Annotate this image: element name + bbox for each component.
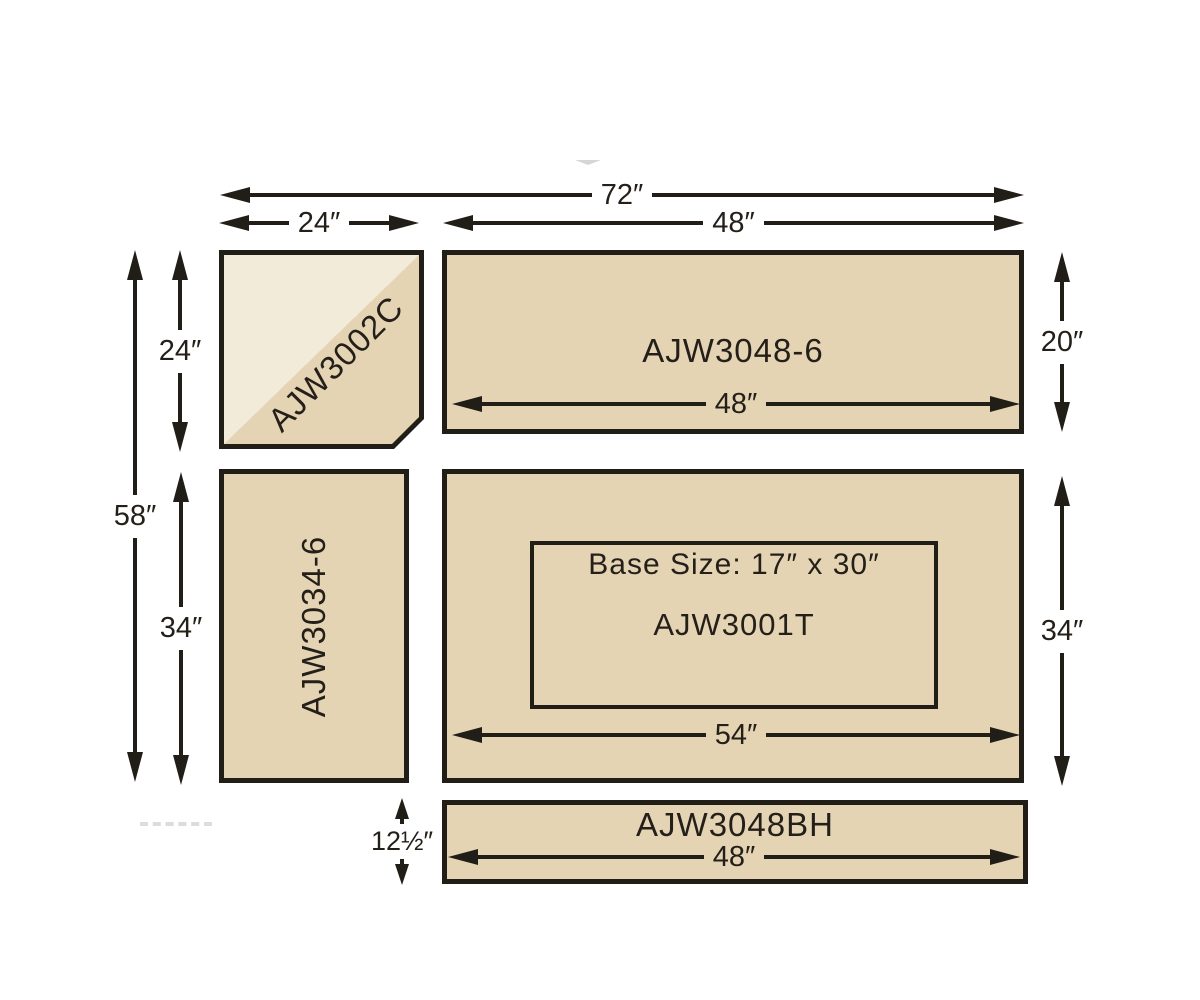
- dim-bottom-panel-height: 12½″: [382, 798, 422, 885]
- dim-line: [178, 373, 182, 423]
- arrowhead-left-icon: [448, 849, 478, 865]
- dim-line: [1060, 653, 1064, 757]
- dim-main-panel-width: 54″: [452, 715, 1020, 755]
- arrowhead-down-icon: [1054, 756, 1070, 786]
- dim-line: [1060, 282, 1064, 321]
- dim-top-panel-height-label: 20″: [1041, 321, 1084, 364]
- dim-corner-width-label: 24″: [289, 209, 350, 238]
- dim-line: [133, 538, 137, 753]
- dim-line: [179, 650, 183, 755]
- dim-left-panel-height-label: 34″: [160, 607, 203, 650]
- dim-overall-height: 58″: [113, 250, 157, 782]
- dim-line: [482, 733, 706, 737]
- dim-top-panel-width: 48″: [452, 384, 1020, 424]
- arrowhead-up-icon: [395, 798, 409, 819]
- arrowhead-left-icon: [219, 215, 249, 231]
- dim-line: [249, 221, 289, 225]
- dim-corner-width: 24″: [219, 203, 419, 243]
- arrowhead-up-icon: [1054, 252, 1070, 282]
- base-size-label: Base Size: 17″ x 30″: [530, 550, 938, 580]
- dim-overall-height-label: 58″: [114, 495, 157, 538]
- arrowhead-left-icon: [452, 396, 482, 412]
- dim-corner-height: 24″: [158, 250, 202, 452]
- dim-line: [178, 280, 182, 330]
- dim-line: [652, 193, 994, 197]
- arrowhead-right-icon: [990, 849, 1020, 865]
- dim-line: [133, 280, 137, 495]
- dim-right-width: 48″: [443, 203, 1024, 243]
- dim-line: [349, 221, 389, 225]
- corner-panel-label: AJW3002C: [262, 290, 409, 437]
- dim-line: [764, 855, 990, 859]
- arrowhead-up-icon: [1054, 476, 1070, 506]
- dim-corner-height-label: 24″: [159, 330, 202, 373]
- arrowhead-left-icon: [452, 727, 482, 743]
- arrowhead-right-icon: [994, 215, 1024, 231]
- dim-line: [482, 402, 706, 406]
- dim-main-panel-height-label: 34″: [1041, 610, 1084, 653]
- arrowhead-down-icon: [395, 864, 409, 885]
- main-panel-label: AJW3001T: [530, 609, 938, 640]
- arrowhead-right-icon: [990, 727, 1020, 743]
- dim-line: [766, 733, 990, 737]
- dim-bottom-panel-width: 48″: [448, 837, 1020, 877]
- dim-line: [766, 402, 990, 406]
- dim-line: [764, 221, 994, 225]
- dim-top-panel-width-label: 48″: [706, 390, 767, 419]
- top-right-panel-label: AJW3048-6: [442, 334, 1024, 367]
- dim-line: [473, 221, 703, 225]
- left-panel-label: AJW3034-6: [297, 535, 330, 716]
- dim-right-width-label: 48″: [703, 209, 764, 238]
- dim-bottom-panel-width-label: 48″: [704, 843, 765, 872]
- dim-line: [179, 502, 183, 607]
- arrowhead-down-icon: [172, 422, 188, 452]
- dim-left-panel-height: 34″: [159, 472, 203, 785]
- arrowhead-right-icon: [990, 396, 1020, 412]
- dim-main-panel-height: 34″: [1040, 476, 1084, 786]
- dim-top-panel-height: 20″: [1040, 252, 1084, 432]
- arrowhead-down-icon: [1054, 402, 1070, 432]
- arrowhead-down-icon: [173, 755, 189, 785]
- watermark-artifact: [140, 822, 212, 826]
- dim-line: [1060, 506, 1064, 610]
- arrowhead-up-icon: [127, 250, 143, 280]
- arrowhead-down-icon: [127, 752, 143, 782]
- arrowhead-right-icon: [994, 187, 1024, 203]
- dim-line: [1060, 364, 1064, 403]
- dim-line: [250, 193, 592, 197]
- arrowhead-left-icon: [220, 187, 250, 203]
- dim-line: [478, 855, 704, 859]
- arrowhead-up-icon: [172, 250, 188, 280]
- dimension-diagram: AJW3002C AJW3048-6 AJW3034-6 Base Size: …: [0, 0, 1200, 1000]
- arrowhead-left-icon: [443, 215, 473, 231]
- dim-bottom-panel-height-label: 12½″: [371, 824, 433, 859]
- dim-main-panel-width-label: 54″: [706, 721, 767, 750]
- arrowhead-up-icon: [173, 472, 189, 502]
- arrowhead-right-icon: [389, 215, 419, 231]
- watermark-artifact: [575, 160, 601, 165]
